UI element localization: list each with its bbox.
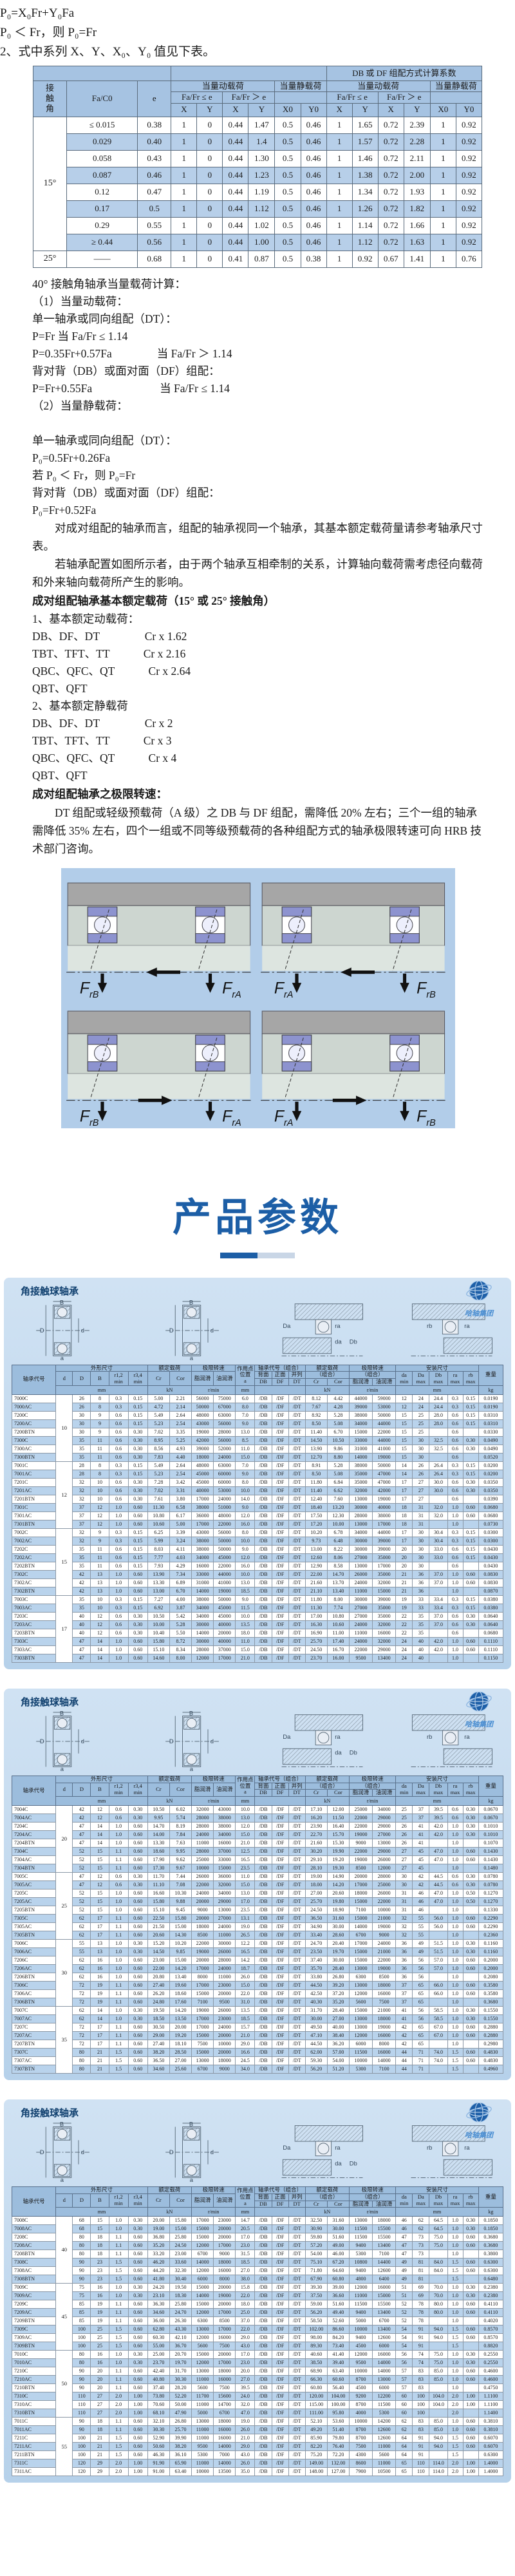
dim-label-D: D	[40, 1738, 44, 1745]
spec-cell: 0.6	[447, 1881, 463, 1889]
spec-cell: 14.70	[327, 1570, 349, 1578]
spec-cell: 0.0200	[478, 1461, 503, 1470]
spec-head-row: dDBr1,2 minr3,4 minCrCor脂润滑油润滑背面正面并列（组合）…	[12, 1783, 503, 1790]
spec-cell: 85.0	[429, 2426, 447, 2434]
spec-cell: 0.15	[463, 1553, 478, 1562]
spec-cell: 0.60	[128, 2242, 147, 2250]
spec-cell: 36.30	[147, 2300, 169, 2309]
spec-cell: 11500	[349, 2233, 372, 2242]
spec-cell: 7002C	[12, 1528, 56, 1537]
spec-cell: 10.50	[327, 1436, 349, 1444]
spec-cell: 84.0	[429, 2259, 447, 2267]
bearing-row: 7201AC32100.60.307.023.31400005300010.0/…	[12, 1486, 503, 1495]
spec-cell: 0.60	[128, 1915, 147, 1923]
coef-cell: 1	[430, 150, 456, 167]
coef-header-cell: X	[378, 103, 404, 117]
spec-cell: 21.10	[305, 1587, 327, 1595]
spec-cell: /DT	[288, 1537, 305, 1545]
spec-cell: 43000	[214, 1806, 236, 1814]
spec-cell: 2.0	[109, 2468, 128, 2476]
spec-cell: 5.08	[327, 1419, 349, 1428]
coef-cell: 1.23	[248, 167, 275, 184]
spec-cell: 1.0	[109, 1823, 128, 1831]
spec-cell: 26000	[214, 1948, 236, 1956]
spec-cell: 24	[396, 1654, 413, 1662]
spec-cell: 18.0	[236, 2300, 255, 2309]
text-line: 单一轴承或同向组配（DT）：	[32, 432, 483, 450]
spec-cell: 11500	[373, 2401, 396, 2409]
spec-cell: /DB	[255, 1419, 272, 1428]
spec-cell: 59000	[373, 1394, 396, 1403]
spec-header-cell: Db max	[429, 2193, 447, 2208]
spec-cell: 65	[413, 1982, 429, 1990]
spec-cell: 9000	[214, 2250, 236, 2259]
spec-cell: 47.0	[429, 1856, 447, 1864]
spec-cell: 0.60	[128, 2451, 147, 2459]
spec-cell: /DF	[272, 1881, 288, 1889]
spec-header-cell: r/min	[349, 1385, 395, 1394]
spec-cell: 0.60	[128, 1839, 147, 1848]
spec-cell: 15.80	[147, 1898, 169, 1906]
spec-cell: 21	[91, 2451, 109, 2459]
spec-cell: 0.1550	[478, 2007, 503, 2015]
spec-cell: 15.0	[236, 1831, 255, 1839]
coef-table: DB 或 DF 组配方式计算系数接 触 角Fa/C0e当量动载荷当量静载荷当量动…	[33, 66, 482, 268]
spec-cell: /DB	[255, 2367, 272, 2376]
spec-cell: 35000	[373, 1553, 396, 1562]
spec-cell: 19	[396, 1595, 413, 1604]
spec-cell: 37	[413, 1806, 429, 1814]
spec-units-row: mmkNr/minmmkNr/minmmkg	[12, 2208, 503, 2217]
spec-cell: 20000	[214, 1990, 236, 1998]
spec-cell: 15600	[214, 2392, 236, 2401]
spec-cell: 0.6	[109, 1562, 128, 1570]
spec-header-cell: mm	[236, 2208, 255, 2217]
spec-cell: /DB	[255, 2401, 272, 2409]
spec-cell: 29	[91, 2468, 109, 2476]
bearing-arrangement-diagram: FrA FrB	[258, 999, 453, 1127]
text-line: P=Fr 当 Fa/Fr ≤ 1.14	[32, 328, 483, 345]
spec-cell: 19000	[214, 1587, 236, 1595]
spec-cell: 85.90	[305, 2434, 327, 2443]
spec-cell: 7.83	[147, 1453, 169, 1461]
spec-cell: 46.20	[147, 2259, 169, 2267]
spec-cell: 9.95	[169, 1848, 191, 1856]
spec-cell	[429, 2250, 447, 2259]
spec-cell: 19000	[192, 1428, 214, 1436]
spec-cell: 36.00	[147, 2317, 169, 2325]
spec-cell: 6.0	[236, 1394, 255, 1403]
spec-header-cell: d	[56, 1372, 73, 1386]
spec-cell: 59.00	[305, 2300, 327, 2309]
spec-cell: 30	[413, 1545, 429, 1553]
spec-header-cell: （组合）	[349, 1783, 395, 1790]
spec-cell: 35	[73, 1604, 91, 1612]
spec-cell: /DT	[288, 1570, 305, 1578]
spec-cell: 30.20	[305, 1848, 327, 1856]
spec-cell: 0.2550	[478, 2359, 503, 2367]
spec-cell: 10	[91, 1478, 109, 1486]
spec-cell: 13000	[349, 2015, 372, 2023]
spec-cell: 1.0	[109, 2007, 128, 2015]
spec-cell: /DF	[272, 2049, 288, 2057]
spec-cell: 12	[91, 1511, 109, 1520]
spec-cell: 22000	[192, 1881, 214, 1889]
spec-cell: /DB	[255, 2334, 272, 2342]
spec-cell: 23.0	[236, 2242, 255, 2250]
spec-header-cell: 额定载荷	[305, 1365, 349, 1372]
formula-line: 2、式中系列 X、Y、X₀、Y₀ 值见下表。	[0, 43, 515, 62]
spec-cell: /DT	[288, 1587, 305, 1595]
spec-cell: 13.0	[236, 1889, 255, 1898]
spec-cell: 6.92	[147, 1604, 169, 1612]
spec-cell: 12	[396, 1403, 413, 1411]
spec-cell: 0.0830	[478, 1570, 503, 1578]
spec-cell: 0.6	[109, 1478, 128, 1486]
spec-cell	[463, 1839, 478, 1848]
spec-cell: 0.60	[128, 1906, 147, 1915]
spec-cell: 27.00	[169, 2057, 191, 2065]
spec-cell: 53000	[214, 1486, 236, 1495]
coef-cell: 0.5	[138, 200, 171, 217]
spec-cell: 11000	[192, 2426, 214, 2434]
spec-cell: 10.0	[236, 1806, 255, 1814]
spec-cell: 14	[91, 1645, 109, 1654]
spec-cell: 44000	[214, 1570, 236, 1578]
spec-cell: 16000	[373, 1990, 396, 1998]
spec-cell: 74.0	[429, 2049, 447, 2057]
spec-cell: 8.0	[236, 1403, 255, 1411]
spec-cell: 9.0	[236, 1595, 255, 1604]
spec-cell: /DB	[255, 1461, 272, 1470]
spec-cell: 7302C	[12, 1570, 56, 1578]
spec-cell: 46.30	[147, 2451, 169, 2459]
spec-cell: 15.00	[169, 1923, 191, 1931]
spec-cell: 6700	[214, 2409, 236, 2418]
spec-cell: 10.60	[147, 1520, 169, 1528]
spec-cell: 1.5	[447, 2065, 463, 2074]
spec-cell: 31	[413, 1520, 429, 1528]
spec-cell: 39.5	[236, 2384, 255, 2392]
spec-cell: 1.1	[109, 2023, 128, 2032]
spec-header-cell: 背面	[255, 1783, 272, 1790]
spec-cell: 0.60	[463, 2434, 478, 2443]
spec-cell: 0.3	[109, 1403, 128, 1411]
force-label-left: FrB	[80, 980, 99, 999]
spec-cell: 17	[91, 1923, 109, 1931]
spec-cell: 62	[413, 2225, 429, 2233]
bearing-row: 7309BTN100251.50.6055.0036.705600750043.…	[12, 2342, 503, 2351]
coef-cell: 0.058	[67, 150, 138, 167]
spec-cell: 32.0	[429, 1503, 447, 1511]
spec-cell: 21.60	[305, 1578, 327, 1587]
spec-cell: 67.90	[305, 2275, 327, 2284]
spec-cell: 56000	[214, 1436, 236, 1444]
spec-cell: 100	[413, 2401, 429, 2409]
spec-cell: 1.0	[447, 2292, 463, 2300]
spec-cell: /DF	[272, 1998, 288, 2007]
spec-cell: 50000	[214, 1595, 236, 1604]
spec-cell: 19.60	[169, 1982, 191, 1990]
coef-cell: 0.72	[378, 234, 404, 251]
spec-cell: 0.0200	[478, 1470, 503, 1478]
spec-cell: 62	[396, 2418, 413, 2426]
spec-cell: /DT	[288, 1478, 305, 1486]
bearing-drawings: B D d a B D d	[12, 1709, 503, 1774]
spec-cell: /DF	[272, 1570, 288, 1578]
bearing-arrangement-diagram: FrB FrA	[64, 999, 258, 1127]
spec-cell: 11000	[349, 1587, 372, 1595]
spec-header-cell: Cor	[327, 2201, 349, 2208]
spec-cell: 15	[91, 1864, 109, 1873]
spec-cell: 35	[413, 1620, 429, 1629]
spec-cell: /DB	[255, 1654, 272, 1662]
spec-cell: 1.5	[109, 2434, 128, 2443]
spec-cell: 37000	[214, 1645, 236, 1654]
spec-header-cell: 安装尺寸	[396, 1365, 478, 1372]
spec-cell: 18000	[192, 1453, 214, 1461]
spec-cell: 1.0	[109, 1654, 128, 1662]
spec-cell: 1.0	[447, 1654, 463, 1662]
text-line: 成对组配轴承基本额定载荷（15° 或 25° 接触角）	[32, 591, 483, 611]
bearing-section-drawing: B D d a	[147, 1711, 238, 1772]
spec-cell: 25.00	[147, 2351, 169, 2359]
spec-cell: 7307C	[12, 2049, 56, 2057]
spec-header-cell: 轴承代号	[12, 1365, 56, 1394]
spec-cell: 26.80	[169, 2418, 191, 2426]
coef-cell: 0.92	[456, 150, 482, 167]
spec-cell: 0.60	[463, 1511, 478, 1520]
spec-header-cell: DF	[272, 1379, 288, 1386]
spec-cell	[429, 2384, 447, 2392]
spec-cell: 15	[91, 1856, 109, 1864]
spec-cell: 104.00	[327, 2392, 349, 2401]
spec-cell: 110	[413, 2459, 429, 2468]
spec-cell: 0.1270	[478, 1889, 503, 1898]
spec-cell: 56	[413, 1973, 429, 1982]
spec-cell: /DB	[255, 2284, 272, 2292]
coef-header-cell	[430, 92, 482, 103]
coef-cell: 1.12	[352, 234, 378, 251]
bearing-row: 7301BTN37121.00.6010.605.00170002200016.…	[12, 1520, 503, 1528]
dim-label-rb: rb	[427, 1322, 432, 1329]
spec-cell: 16000	[373, 2284, 396, 2292]
spec-cell: 28000	[214, 1428, 236, 1436]
spec-cell: 0.15	[463, 1470, 478, 1478]
spec-cell: 0.0390	[478, 1495, 503, 1503]
spec-cell: 35000	[349, 1478, 372, 1486]
bearing-row: 7008C4068151.00.3020.0015.80170002300014…	[12, 2217, 503, 2225]
spec-cell: 19.80	[327, 1898, 349, 1906]
spec-cell: 7205C	[12, 1889, 56, 1898]
spec-cell	[429, 2342, 447, 2351]
spec-cell: 5300	[349, 2250, 372, 2259]
spec-header-cell: kN	[147, 1797, 191, 1806]
spec-cell: 38000	[214, 1823, 236, 1831]
spec-cell: 14.2	[236, 1956, 255, 1965]
spec-cell: 23.90	[305, 1823, 327, 1831]
spec-cell: 67.0	[429, 2023, 447, 2032]
page: { "formulas_top": { "line1": "P₀=X₀Fr+Y₀…	[0, 0, 515, 2576]
spec-cell: 0.0310	[478, 1411, 503, 1419]
spec-cell	[463, 2342, 478, 2351]
spec-cell: 24.5	[236, 2057, 255, 2065]
spec-cell: 39.5	[429, 1806, 447, 1814]
spec-cell: 18.5	[236, 2259, 255, 2267]
spec-cell: 7301AC	[12, 1511, 56, 1520]
spec-cell: 0.30	[463, 1612, 478, 1620]
spec-cell: /DB	[255, 1587, 272, 1595]
spec-cell: 15.0	[236, 1453, 255, 1461]
coef-cell: 1.14	[352, 217, 378, 234]
spec-cell: 27000	[373, 1831, 396, 1839]
spec-cell: 8500	[192, 1931, 214, 1940]
spec-cell: 0.15	[128, 1595, 147, 1604]
spec-cell: 17.0	[236, 2233, 255, 2242]
spec-cell: 19	[91, 2309, 109, 2317]
spec-cell: 28000	[192, 1848, 214, 1856]
spec-cell: 0.1010	[478, 1823, 503, 1831]
spec-cell: 5.28	[327, 1411, 349, 1419]
spec-cell: 10.0	[236, 1537, 255, 1545]
spec-cell: 148.00	[305, 2468, 327, 2476]
spec-cell: 0.60	[128, 2065, 147, 2074]
spec-cell: 10000	[192, 1864, 214, 1873]
spec-cell: 0.30	[128, 1806, 147, 1814]
spec-cell: 22	[396, 1629, 413, 1637]
spec-cell: 1.1	[109, 2418, 128, 2426]
spec-cell: 5600	[192, 2342, 214, 2351]
spec-cell: 1.1	[109, 2040, 128, 2049]
spec-cell: /DB	[255, 2023, 272, 2032]
spec-cell: 0.60	[128, 2057, 147, 2065]
coef-cell: 0.44	[223, 133, 248, 150]
spec-cell: /DT	[288, 1931, 305, 1940]
spec-cell: 7007C	[12, 2007, 56, 2015]
spec-cell: /DB	[255, 1570, 272, 1578]
spec-cell	[429, 1998, 447, 2007]
spec-cell: 52	[73, 1889, 91, 1898]
spec-cell: 0.6	[447, 1806, 463, 1814]
coef-cell: 1	[430, 184, 456, 200]
spec-cell: 0.1150	[478, 1654, 503, 1662]
spec-cell	[463, 1428, 478, 1436]
spec-cell: 0.4020	[478, 2317, 503, 2325]
spec-cell: 1.0	[109, 1956, 128, 1965]
spec-cell: /DB	[255, 1965, 272, 1973]
spec-cell: 26	[413, 1470, 429, 1478]
spec-cell: 12000	[349, 2284, 372, 2292]
spec-cell: 30	[413, 1537, 429, 1545]
spec-cell: 0.6	[447, 1814, 463, 1823]
spec-cell: 1.0	[447, 1503, 463, 1511]
spec-cell: 8.03	[147, 1545, 169, 1553]
spec-cell: /DT	[288, 2267, 305, 2275]
bearing-row: 7301C37121.00.6011.306.5838000510009.0/D…	[12, 1503, 503, 1511]
spec-cell: 27	[413, 1486, 429, 1495]
spec-cell: 46	[396, 2225, 413, 2233]
spec-cell: 17000	[349, 1881, 372, 1889]
spec-cell: 19.20	[327, 1856, 349, 1864]
dim-label-rb: rb	[427, 1733, 432, 1740]
spec-cell: /DB	[255, 1403, 272, 1411]
spec-cell: 47000	[373, 1470, 396, 1478]
spec-cell: 6000	[373, 2384, 396, 2392]
spec-cell: 13000	[349, 1562, 372, 1570]
spec-cell: 15000	[349, 1956, 372, 1965]
spec-cell: /DF	[272, 2359, 288, 2367]
spec-cell: 17	[91, 2040, 109, 2049]
spec-cell: 0.60	[128, 2317, 147, 2325]
spec-cell: 17000	[192, 2015, 214, 2023]
spec-cell: 49	[413, 1948, 429, 1956]
spec-cell: 7201AC	[12, 1486, 56, 1495]
coef-cell: 0.46	[301, 234, 326, 251]
spec-cell: 1.0	[447, 1948, 463, 1956]
spec-cell: 85.0	[429, 2367, 447, 2376]
spec-cell: 65	[413, 2032, 429, 2040]
spec-cell: 8	[91, 1403, 109, 1411]
bearing-row: 7201C32100.60.307.283.4245000600008.0/DB…	[12, 1478, 503, 1486]
spec-cell: 22.70	[305, 1831, 327, 1839]
spec-cell: /DF	[272, 2015, 288, 2023]
bearing-row: 7311AC120292.01.0091.0063.40100001350035…	[12, 2468, 503, 2476]
spec-cell: 7203AC	[12, 1620, 56, 1629]
spec-cell: 8000	[214, 2275, 236, 2284]
spec-cell: 0.4110	[478, 2309, 503, 2317]
spec-cell: 0.0670	[478, 1814, 503, 1823]
bearing-row: 7307C80211.50.6038.2028.50150002000016.6…	[12, 2049, 503, 2057]
spec-cell: 0.60	[463, 1915, 478, 1923]
spec-cell: 1.0	[447, 1848, 463, 1856]
spec-cell: 0.4600	[478, 2376, 503, 2384]
spec-cell	[463, 2384, 478, 2392]
spec-cell: /DT	[288, 1520, 305, 1528]
spec-cell: /DB	[255, 1982, 272, 1990]
spec-cell: 9.95	[147, 1814, 169, 1823]
spec-cell: 24.4	[429, 1403, 447, 1411]
spec-cell: 16	[91, 2292, 109, 2300]
spec-cell: 20	[396, 1545, 413, 1553]
spec-cell: 56.0	[429, 1915, 447, 1923]
spec-cell: 1.0	[447, 1940, 463, 1948]
spec-cell: 0.0430	[478, 1545, 503, 1553]
spec-cell: 56	[413, 2007, 429, 2015]
spec-cell: 52	[73, 1898, 91, 1906]
spec-cell: 33	[413, 1595, 429, 1604]
spec-cell: 4.00	[169, 1595, 191, 1604]
text-block: 40° 接触角轴承当量载荷计算：（1）当量动载荷：单一轴承或同向组配（DT）：P…	[0, 268, 515, 858]
spec-cell: /DF	[272, 2267, 288, 2275]
spec-cell: 32.30	[169, 2267, 191, 2275]
coef-cell: 1.34	[352, 184, 378, 200]
spec-cell: 19	[396, 1604, 413, 1612]
spec-cell: 0.60	[463, 1923, 478, 1931]
spec-cell: 8000	[192, 1973, 214, 1982]
spec-cell: /DF	[272, 2459, 288, 2468]
spec-cell: 1.5	[447, 2049, 463, 2057]
spec-cell: 7100	[373, 2250, 396, 2259]
force-label-left: FrA	[274, 980, 294, 999]
spec-cell: 1.0	[447, 2217, 463, 2225]
spec-cell: 6700	[192, 2065, 214, 2074]
spec-cell: 40	[73, 1612, 91, 1620]
spec-cell: 19.90	[327, 1848, 349, 1856]
spec-cell: 7202BTN	[12, 1562, 56, 1570]
spec-cell: 10	[91, 1595, 109, 1604]
spec-cell: 12200	[373, 2392, 396, 2401]
spec-cell: 0.60	[128, 1956, 147, 1965]
